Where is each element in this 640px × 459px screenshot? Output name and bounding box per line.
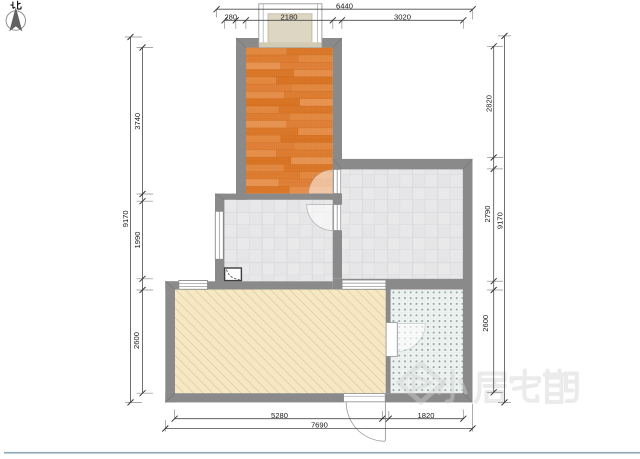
svg-text:2820: 2820 xyxy=(484,95,493,112)
svg-text:9170: 9170 xyxy=(495,212,504,229)
svg-text:2600: 2600 xyxy=(481,315,490,332)
svg-text:280: 280 xyxy=(224,12,237,21)
svg-text:1990: 1990 xyxy=(133,232,142,249)
svg-text:9170: 9170 xyxy=(121,210,130,227)
svg-text:3020: 3020 xyxy=(394,12,411,21)
svg-text:6440: 6440 xyxy=(336,2,353,11)
svg-text:3740: 3740 xyxy=(133,113,142,130)
svg-text:2600: 2600 xyxy=(132,332,141,349)
svg-text:2790: 2790 xyxy=(483,206,492,223)
svg-text:2180: 2180 xyxy=(281,12,298,21)
svg-text:7690: 7690 xyxy=(311,421,328,430)
svg-text:5280: 5280 xyxy=(271,411,288,420)
svg-text:1820: 1820 xyxy=(418,411,435,420)
